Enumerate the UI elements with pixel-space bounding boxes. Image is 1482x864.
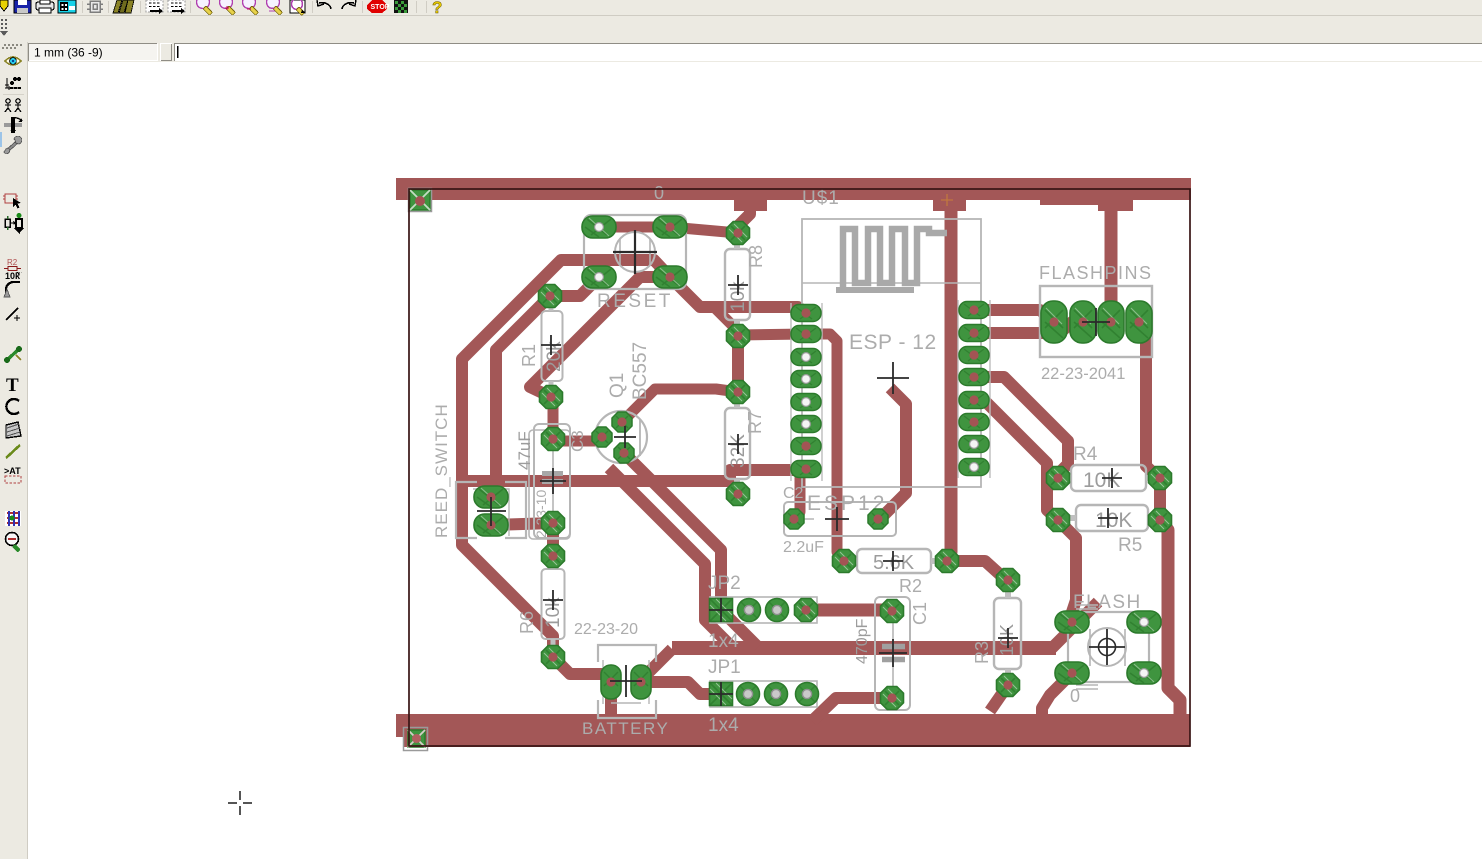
svg-text:FLASHPINS: FLASHPINS bbox=[1039, 263, 1153, 283]
svg-text:10K: 10K bbox=[1095, 509, 1132, 532]
svg-text:JP2: JP2 bbox=[708, 573, 741, 594]
svg-text:C1: C1 bbox=[910, 602, 930, 625]
svg-text:R7: R7 bbox=[745, 411, 765, 434]
svg-text:BATTERY: BATTERY bbox=[582, 719, 669, 738]
svg-text:R3: R3 bbox=[972, 641, 992, 664]
svg-text:R5: R5 bbox=[1118, 535, 1142, 556]
svg-text:Q1: Q1 bbox=[607, 373, 628, 398]
svg-text:REED_SWITCH: REED_SWITCH bbox=[432, 403, 451, 538]
svg-text:0: 0 bbox=[654, 183, 664, 203]
svg-text:BC557: BC557 bbox=[630, 342, 651, 400]
svg-text:1 mm (36 -9): 1 mm (36 -9) bbox=[34, 46, 103, 60]
svg-text:C3: C3 bbox=[568, 430, 587, 452]
svg-text:10K: 10K bbox=[997, 624, 1017, 656]
svg-text:JP1: JP1 bbox=[708, 657, 741, 678]
svg-text:U$1: U$1 bbox=[802, 188, 840, 209]
svg-text:>AT: >AT bbox=[4, 466, 21, 476]
svg-text:1x4: 1x4 bbox=[708, 715, 739, 736]
svg-text:0: 0 bbox=[1070, 686, 1080, 706]
svg-text:22-23-2041: 22-23-2041 bbox=[1041, 365, 1125, 383]
svg-text:R6: R6 bbox=[517, 611, 537, 634]
svg-text:STOP: STOP bbox=[371, 4, 390, 11]
svg-text:2.2uF: 2.2uF bbox=[783, 539, 824, 556]
svg-text:FLASH: FLASH bbox=[1073, 592, 1142, 613]
svg-text:R1: R1 bbox=[519, 344, 539, 367]
svg-text:R2: R2 bbox=[899, 576, 922, 596]
svg-text:RESET: RESET bbox=[597, 291, 673, 312]
svg-text:ESP - 12: ESP - 12 bbox=[849, 331, 937, 354]
svg-text:R8: R8 bbox=[746, 245, 766, 268]
svg-text:R4: R4 bbox=[1073, 444, 1098, 465]
svg-text:R2: R2 bbox=[7, 258, 18, 267]
svg-text:10K: 10K bbox=[1083, 469, 1120, 492]
svg-text:5.6K: 5.6K bbox=[873, 552, 915, 574]
svg-text:C2: C2 bbox=[783, 485, 804, 502]
svg-text:?: ? bbox=[432, 0, 442, 17]
svg-text:22-23-20: 22-23-20 bbox=[574, 621, 638, 638]
svg-text:470pF: 470pF bbox=[854, 618, 871, 664]
svg-text:1x4: 1x4 bbox=[708, 631, 739, 652]
svg-text:T: T bbox=[6, 375, 19, 396]
svg-text:47uF: 47uF bbox=[515, 431, 534, 470]
